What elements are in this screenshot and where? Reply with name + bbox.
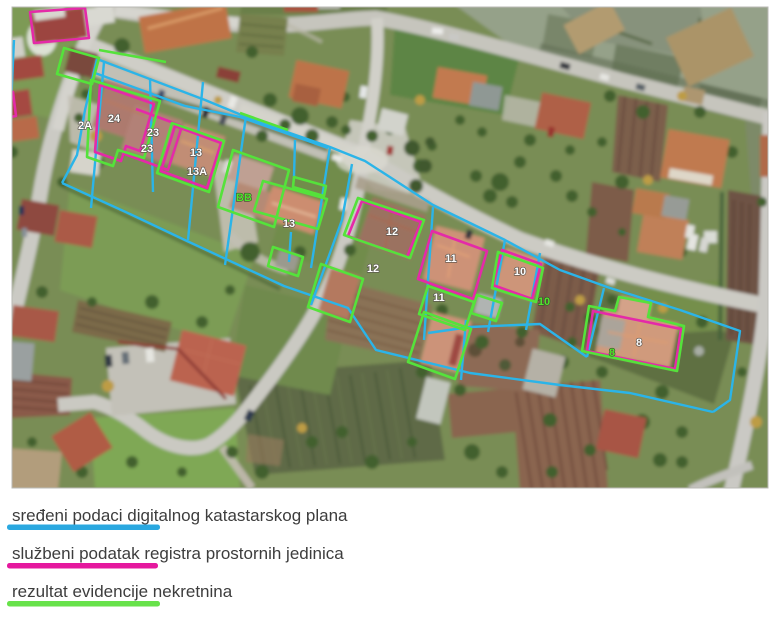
svg-text:2A: 2A xyxy=(78,120,92,132)
svg-text:13: 13 xyxy=(283,218,295,230)
svg-text:službeni podatak registra pros: službeni podatak registra prostornih jed… xyxy=(12,544,344,563)
svg-text:11: 11 xyxy=(445,253,457,265)
svg-text:rezultat evidencije nekretnina: rezultat evidencije nekretnina xyxy=(12,582,233,601)
svg-text:8: 8 xyxy=(609,347,615,359)
svg-text:10: 10 xyxy=(514,266,526,278)
svg-text:23: 23 xyxy=(147,127,159,139)
svg-text:13: 13 xyxy=(190,147,202,159)
svg-text:13A: 13A xyxy=(187,166,207,178)
svg-text:12: 12 xyxy=(386,226,398,238)
svg-text:BB: BB xyxy=(236,192,252,204)
svg-text:8: 8 xyxy=(636,337,642,349)
svg-text:10: 10 xyxy=(538,296,550,308)
svg-text:sređeni podaci digitalnog kata: sređeni podaci digitalnog katastarskog p… xyxy=(12,506,348,525)
svg-text:12: 12 xyxy=(367,263,379,275)
svg-text:24: 24 xyxy=(108,113,121,125)
svg-text:23: 23 xyxy=(141,143,153,155)
svg-text:11: 11 xyxy=(433,292,445,304)
